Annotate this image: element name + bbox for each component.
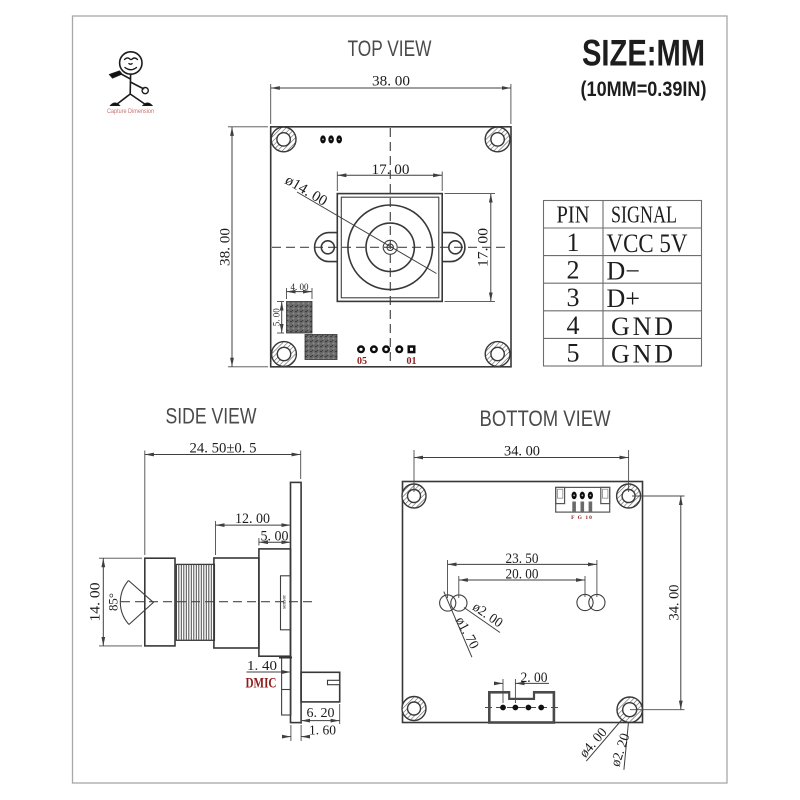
svg-text:Capture Dimension: Capture Dimension (107, 109, 154, 115)
svg-text:D−: D− (607, 257, 640, 286)
svg-text:34. 00: 34. 00 (667, 585, 683, 621)
svg-text:4: 4 (567, 311, 580, 340)
svg-text:(10MM=0.39IN): (10MM=0.39IN) (581, 78, 707, 101)
svg-text:6. 20: 6. 20 (307, 705, 335, 720)
svg-text:20. 00: 20. 00 (506, 566, 539, 582)
svg-text:GND: GND (611, 312, 673, 341)
svg-text:5. 00: 5. 00 (273, 308, 283, 326)
svg-text:PIN: PIN (557, 203, 590, 229)
svg-text:D+: D+ (607, 284, 640, 313)
svg-text:4. 00: 4. 00 (291, 283, 309, 293)
svg-text:34. 00: 34. 00 (504, 444, 540, 460)
svg-text:BOTTOM VIEW: BOTTOM VIEW (480, 406, 612, 431)
svg-text:5. 00: 5. 00 (261, 529, 289, 545)
svg-text:17. 00: 17. 00 (476, 228, 492, 267)
svg-text:F G 10: F G 10 (571, 515, 593, 521)
svg-text:85°: 85° (106, 593, 121, 611)
svg-text:24. 50±0. 5: 24. 50±0. 5 (190, 440, 257, 456)
svg-text:12. 00: 12. 00 (235, 511, 270, 527)
svg-text:17. 00: 17. 00 (372, 162, 410, 178)
svg-text:sensor: sensor (282, 595, 288, 609)
svg-text:01: 01 (407, 356, 417, 367)
svg-text:VCC 5V: VCC 5V (607, 229, 688, 258)
svg-text:5: 5 (567, 338, 580, 367)
svg-text:2: 2 (567, 256, 580, 285)
svg-text:05: 05 (357, 356, 367, 367)
svg-text:38. 00: 38. 00 (372, 74, 410, 90)
svg-text:23. 50: 23. 50 (506, 551, 539, 567)
svg-text:SIDE VIEW: SIDE VIEW (166, 404, 258, 429)
svg-text:SIZE:MM: SIZE:MM (582, 33, 705, 74)
svg-text:DMIC: DMIC (246, 676, 277, 692)
svg-text:38. 00: 38. 00 (218, 228, 234, 266)
svg-text:1: 1 (567, 228, 580, 257)
svg-text:SIGNAL: SIGNAL (611, 203, 677, 229)
svg-text:1. 40: 1. 40 (247, 658, 277, 673)
svg-text:3: 3 (567, 283, 580, 312)
svg-text:2. 00: 2. 00 (521, 670, 548, 686)
svg-text:GND: GND (611, 339, 673, 368)
svg-text:1. 60: 1. 60 (309, 722, 336, 737)
svg-text:TOP VIEW: TOP VIEW (348, 36, 433, 61)
svg-text:14. 00: 14. 00 (88, 583, 104, 622)
